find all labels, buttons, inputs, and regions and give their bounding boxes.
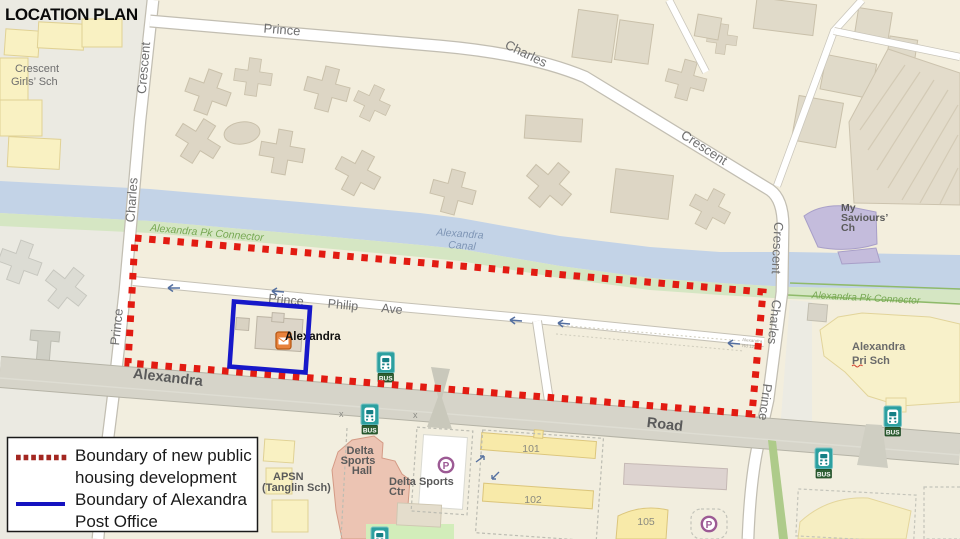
svg-text:Prince: Prince [263,21,301,39]
svg-text:Post Office: Post Office [75,512,158,531]
svg-text:102: 102 [524,494,542,506]
svg-text:(Tanglin Sch): (Tanglin Sch) [262,482,331,494]
svg-text:Canal: Canal [448,239,477,253]
svg-text:101: 101 [522,443,540,455]
svg-text:x: x [339,409,344,419]
svg-text:Ctr: Ctr [389,486,406,498]
svg-text:Boundary of new public: Boundary of new public [75,446,252,465]
svg-text:Hall: Hall [352,465,372,477]
svg-text:Crescent: Crescent [769,222,787,275]
svg-text:Boundary of Alexandra: Boundary of Alexandra [75,490,248,509]
svg-text:LOCATION PLAN: LOCATION PLAN [5,5,138,24]
svg-text:Crescent: Crescent [15,63,59,75]
svg-text:Ch: Ch [841,222,855,234]
svg-text:Ave: Ave [381,301,404,317]
svg-text:x: x [413,410,418,420]
svg-text:Alexandra: Alexandra [852,341,906,353]
svg-text:Pri Sch: Pri Sch [852,355,890,367]
svg-text:Philip: Philip [327,297,359,314]
svg-text:housing development: housing development [75,468,237,487]
svg-text:Alexandra: Alexandra [285,331,341,343]
svg-text:Girls’ Sch: Girls’ Sch [11,76,58,88]
svg-text:Charles: Charles [122,177,140,223]
svg-text:105: 105 [637,516,655,528]
